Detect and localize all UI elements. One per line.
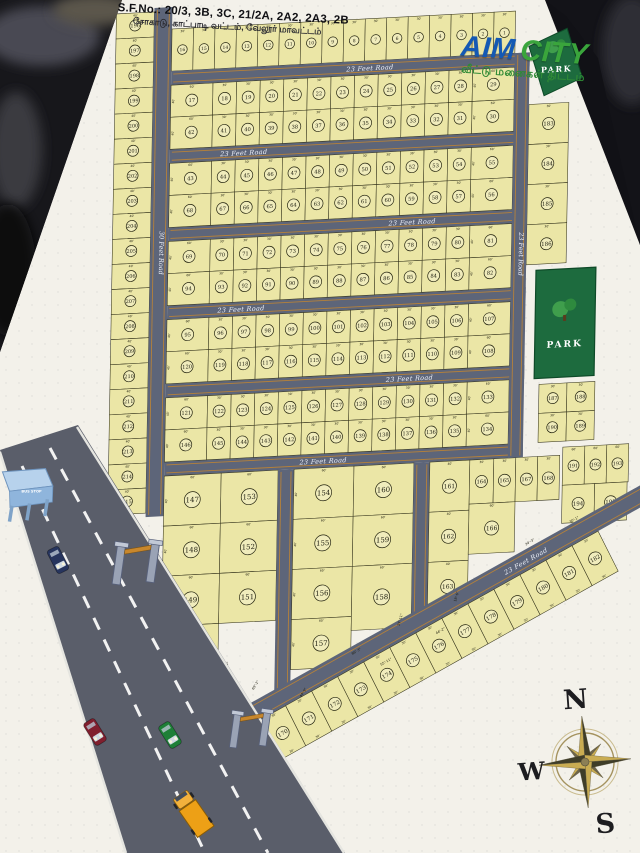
plot-number: 41 bbox=[221, 128, 228, 134]
svg-text:60': 60' bbox=[189, 575, 194, 579]
svg-text:30': 30' bbox=[374, 19, 379, 23]
svg-text:40': 40' bbox=[130, 214, 135, 218]
plot-49: 4930' bbox=[329, 154, 353, 187]
svg-text:60': 60' bbox=[184, 429, 189, 433]
plot-67: 6730' bbox=[211, 192, 235, 225]
svg-text:30': 30' bbox=[405, 418, 410, 422]
plot-number: 48 bbox=[314, 169, 321, 175]
plot-2: 230' bbox=[472, 12, 494, 55]
svg-text:30': 30' bbox=[361, 264, 366, 268]
plot-117: 11730' bbox=[255, 346, 279, 379]
plot-number: 2 bbox=[482, 31, 485, 37]
plot-119: 11930' bbox=[208, 348, 232, 381]
plot-9: 930' bbox=[322, 20, 344, 63]
plot-133: 13360'40' bbox=[467, 380, 510, 414]
plot-95: 9560'40' bbox=[166, 318, 209, 352]
svg-text:40': 40' bbox=[132, 89, 137, 93]
plot-number: 33 bbox=[409, 118, 416, 124]
svg-text:30': 30' bbox=[362, 186, 367, 190]
plot-number: 139 bbox=[355, 433, 365, 440]
plot-98: 9830' bbox=[256, 314, 280, 347]
plot-number: 183 bbox=[543, 121, 554, 128]
plot-number: 25 bbox=[386, 87, 393, 93]
svg-text:40': 40' bbox=[126, 439, 131, 443]
svg-text:30': 30' bbox=[546, 104, 551, 108]
plot-126: 12630' bbox=[301, 390, 325, 423]
plot-number: 97 bbox=[241, 329, 248, 335]
plot-101: 10130' bbox=[326, 310, 350, 343]
layout-photo: 19640'19740'19840'19940'20040'20140'2024… bbox=[0, 0, 640, 853]
plot-number: 14 bbox=[222, 45, 228, 51]
plot-number: 57 bbox=[455, 194, 462, 200]
plot-100: 10030' bbox=[303, 311, 327, 344]
svg-text:30': 30' bbox=[359, 388, 364, 392]
plot-number: 69 bbox=[186, 254, 193, 260]
plot-number: 129 bbox=[379, 400, 389, 407]
svg-text:30': 30' bbox=[524, 458, 529, 462]
plot-number: 166 bbox=[486, 525, 498, 533]
plot-12: 1230' bbox=[257, 23, 279, 66]
svg-text:40': 40' bbox=[133, 13, 138, 17]
plot-90: 9030' bbox=[280, 266, 304, 299]
svg-text:40': 40' bbox=[472, 115, 476, 120]
svg-text:30': 30' bbox=[340, 109, 345, 113]
plot-number: 196 bbox=[130, 23, 140, 30]
plot-64: 6430' bbox=[281, 188, 305, 221]
plot-number: 51 bbox=[385, 166, 392, 172]
plot-38: 3830' bbox=[283, 110, 307, 143]
plot-number: 112 bbox=[380, 354, 390, 361]
plot-199: 19940' bbox=[115, 87, 153, 114]
svg-text:30': 30' bbox=[218, 349, 223, 353]
plot-74: 7430' bbox=[304, 233, 328, 266]
svg-text:30': 30' bbox=[384, 309, 389, 313]
svg-text:30': 30' bbox=[578, 412, 583, 416]
plot-26: 2630' bbox=[401, 72, 425, 105]
plot-92: 9230' bbox=[233, 269, 257, 302]
svg-text:60': 60' bbox=[321, 518, 326, 522]
svg-text:30': 30' bbox=[434, 104, 439, 108]
plot-number: 128 bbox=[356, 401, 366, 408]
svg-text:40': 40' bbox=[473, 83, 477, 88]
svg-text:40': 40' bbox=[127, 364, 132, 368]
plot-number: 62 bbox=[337, 200, 344, 206]
svg-text:30': 30' bbox=[289, 346, 294, 350]
svg-text:30': 30' bbox=[417, 17, 422, 21]
svg-text:30': 30' bbox=[339, 187, 344, 191]
plot-number: 75 bbox=[336, 246, 343, 252]
plot-147: 14760'40' bbox=[163, 473, 221, 526]
svg-text:40': 40' bbox=[467, 395, 471, 400]
plot-145: 14530' bbox=[206, 427, 230, 460]
plot-30: 3060'40' bbox=[472, 99, 515, 133]
plot-number: 93 bbox=[218, 285, 225, 291]
svg-text:30': 30' bbox=[502, 459, 507, 463]
plot-number: 198 bbox=[130, 73, 140, 80]
plot-99: 9930' bbox=[279, 313, 303, 346]
plot-number: 27 bbox=[434, 85, 441, 91]
plot-number: 74 bbox=[313, 247, 320, 253]
plot-151: 15160' bbox=[219, 570, 277, 623]
plot-112: 11230' bbox=[373, 340, 397, 373]
svg-text:30': 30' bbox=[216, 428, 221, 432]
svg-text:40': 40' bbox=[167, 333, 171, 338]
svg-text:30': 30' bbox=[340, 77, 345, 81]
plot-number: 167 bbox=[521, 477, 531, 484]
plot-76: 7630' bbox=[351, 231, 375, 264]
svg-text:40': 40' bbox=[168, 287, 172, 292]
plot-109: 10930' bbox=[444, 336, 468, 369]
plot-number: 153 bbox=[242, 493, 255, 502]
plot-number: 164 bbox=[476, 479, 487, 486]
svg-text:30': 30' bbox=[289, 314, 294, 318]
plot-54: 5430' bbox=[447, 148, 471, 181]
plot-number: 124 bbox=[261, 406, 272, 413]
svg-text:30': 30' bbox=[265, 347, 270, 351]
plot-68: 6860'40' bbox=[169, 193, 212, 227]
plot-number: 71 bbox=[242, 251, 249, 257]
plot-201: 20140' bbox=[114, 137, 152, 164]
svg-text:30': 30' bbox=[453, 383, 458, 387]
svg-text:60': 60' bbox=[381, 515, 386, 519]
plot-number: 19 bbox=[245, 95, 252, 101]
plot-number: 37 bbox=[315, 123, 322, 129]
plot-number: 121 bbox=[181, 410, 191, 417]
svg-text:30': 30' bbox=[429, 416, 434, 420]
plot-number: 134 bbox=[482, 427, 493, 434]
plot-10: 1030' bbox=[300, 21, 322, 64]
plot-number: 185 bbox=[542, 201, 553, 208]
plot-152: 15260' bbox=[219, 520, 277, 573]
svg-text:60': 60' bbox=[190, 85, 195, 89]
svg-text:40': 40' bbox=[168, 255, 172, 260]
svg-text:60': 60' bbox=[491, 101, 496, 105]
plot-number: 204 bbox=[127, 223, 137, 230]
svg-text:30': 30' bbox=[334, 421, 339, 425]
plot-number: 77 bbox=[384, 244, 391, 250]
svg-text:30': 30' bbox=[361, 232, 366, 236]
plot-87: 8730' bbox=[351, 263, 375, 296]
plot-number: 141 bbox=[308, 436, 318, 443]
plot-44: 4430' bbox=[211, 160, 235, 193]
svg-text:30': 30' bbox=[433, 150, 438, 154]
plot-108: 10860'40' bbox=[467, 334, 510, 368]
svg-text:30': 30' bbox=[579, 383, 584, 387]
svg-text:40': 40' bbox=[294, 492, 298, 497]
svg-text:30': 30' bbox=[454, 337, 459, 341]
plot-141: 14130' bbox=[301, 422, 325, 455]
plot-107: 10760'40' bbox=[468, 302, 511, 336]
plot-7: 730' bbox=[365, 18, 387, 61]
plot-207: 20740' bbox=[111, 288, 149, 315]
plot-number: 186 bbox=[541, 241, 552, 248]
plot-20: 2030' bbox=[260, 79, 284, 112]
plot-121: 12160'40' bbox=[165, 396, 208, 430]
svg-text:30': 30' bbox=[291, 189, 296, 193]
plot-137: 13730' bbox=[395, 417, 419, 450]
svg-text:30': 30' bbox=[270, 80, 275, 84]
plot-78: 7830' bbox=[399, 228, 423, 261]
plot-192: 19260' bbox=[584, 445, 607, 484]
plot-89: 8930' bbox=[304, 265, 328, 298]
park-large: PARK bbox=[534, 267, 596, 378]
svg-text:30': 30' bbox=[454, 305, 459, 309]
svg-text:30': 30' bbox=[551, 384, 556, 388]
plot-number: 118 bbox=[238, 361, 248, 368]
svg-text:30': 30' bbox=[288, 392, 293, 396]
plot-17: 1760'40' bbox=[171, 83, 214, 117]
plot-21: 2130' bbox=[283, 78, 307, 111]
road-label-23ft-vertical: 23 Feet Road bbox=[516, 231, 525, 276]
svg-text:30': 30' bbox=[309, 22, 314, 26]
svg-text:30': 30' bbox=[352, 20, 357, 24]
svg-text:30': 30' bbox=[433, 182, 438, 186]
plot-number: 13 bbox=[244, 44, 250, 50]
plot-number: 206 bbox=[126, 274, 136, 281]
svg-text:60': 60' bbox=[382, 465, 387, 469]
plot-29: 2960'40' bbox=[472, 67, 515, 101]
plot-111: 11130' bbox=[397, 338, 421, 371]
plot-79: 7930' bbox=[422, 227, 446, 260]
plot-61: 6130' bbox=[352, 185, 376, 218]
plot-number: 76 bbox=[360, 245, 367, 251]
plot-84: 8430' bbox=[422, 259, 446, 292]
plot-number: 130 bbox=[403, 399, 413, 406]
plot-204: 20440' bbox=[113, 212, 151, 239]
svg-text:30': 30' bbox=[223, 27, 228, 31]
plot-number: 70 bbox=[218, 252, 225, 258]
plot-185: 18530' bbox=[527, 183, 568, 225]
svg-text:60': 60' bbox=[188, 195, 193, 199]
plot-143: 14330' bbox=[254, 424, 278, 457]
plot-57: 5730' bbox=[447, 180, 471, 213]
plot-number: 47 bbox=[291, 171, 298, 177]
plot-number: 108 bbox=[484, 349, 494, 356]
plot-number: 187 bbox=[548, 396, 558, 403]
plot-number: 161 bbox=[444, 483, 456, 491]
svg-text:30': 30' bbox=[290, 268, 295, 272]
svg-text:30': 30' bbox=[312, 344, 317, 348]
svg-text:60': 60' bbox=[489, 225, 494, 229]
plot-number: 35 bbox=[362, 121, 369, 127]
svg-text:30': 30' bbox=[220, 239, 225, 243]
svg-text:30': 30' bbox=[336, 343, 341, 347]
plot-number: 162 bbox=[443, 533, 455, 541]
plot-31: 3130' bbox=[448, 101, 472, 134]
plot-135: 13530' bbox=[442, 414, 466, 447]
svg-text:30': 30' bbox=[438, 15, 443, 19]
plot-number: 15 bbox=[201, 46, 207, 52]
plot-number: 194 bbox=[573, 501, 584, 508]
plot-203: 20340' bbox=[113, 187, 151, 214]
svg-text:30': 30' bbox=[219, 271, 224, 275]
plot-196: 19640' bbox=[116, 12, 154, 39]
plot-85: 8530' bbox=[398, 260, 422, 293]
svg-text:30': 30' bbox=[409, 229, 414, 233]
plot-number: 111 bbox=[404, 353, 414, 360]
svg-text:60': 60' bbox=[322, 468, 327, 472]
plot-50: 5030' bbox=[353, 153, 377, 186]
svg-text:30': 30' bbox=[411, 73, 416, 77]
plot-34: 3430' bbox=[377, 105, 401, 138]
svg-text:30': 30' bbox=[336, 311, 341, 315]
plot-123: 12330' bbox=[231, 393, 255, 426]
svg-text:30': 30' bbox=[242, 316, 247, 320]
compass-north-label: N bbox=[562, 684, 589, 717]
svg-text:30': 30' bbox=[245, 26, 250, 30]
svg-text:40': 40' bbox=[128, 289, 133, 293]
svg-text:30': 30' bbox=[288, 23, 293, 27]
svg-text:30': 30' bbox=[218, 317, 223, 321]
plot-number: 79 bbox=[431, 241, 438, 247]
plot-number: 208 bbox=[125, 324, 135, 331]
plot-200: 20040' bbox=[114, 112, 152, 139]
plot-number: 31 bbox=[457, 116, 464, 122]
plot-43: 4360'40' bbox=[169, 161, 212, 195]
svg-text:40': 40' bbox=[447, 512, 452, 516]
plot-213: 21340' bbox=[109, 438, 147, 465]
svg-text:30': 30' bbox=[395, 18, 400, 22]
plot-number: 154 bbox=[317, 489, 331, 498]
plot-93: 9330' bbox=[209, 270, 233, 303]
plot-115: 11530' bbox=[302, 343, 326, 376]
plot-53: 5330' bbox=[424, 149, 448, 182]
svg-text:30': 30' bbox=[544, 224, 549, 228]
svg-text:40': 40' bbox=[468, 349, 472, 354]
svg-text:30': 30' bbox=[545, 184, 550, 188]
plot-number: 43 bbox=[187, 176, 194, 182]
plot-168: 16830' bbox=[537, 455, 560, 500]
plot-number: 38 bbox=[291, 124, 298, 130]
plot-number: 3 bbox=[460, 32, 463, 38]
svg-text:30': 30' bbox=[222, 83, 227, 87]
svg-text:60': 60' bbox=[320, 568, 325, 572]
plot-132: 13230' bbox=[443, 382, 467, 415]
svg-text:30': 30' bbox=[410, 151, 415, 155]
plot-75: 7530' bbox=[328, 232, 352, 265]
plot-number: 135 bbox=[450, 428, 460, 435]
plot-number: 45 bbox=[243, 173, 250, 179]
bus-stop-label: BUS STOP bbox=[21, 490, 42, 494]
svg-text:30': 30' bbox=[221, 193, 226, 197]
plot-186: 18630' bbox=[526, 223, 567, 265]
plot-48: 4830' bbox=[306, 155, 330, 188]
svg-text:30': 30' bbox=[430, 338, 435, 342]
plot-165: 16530' bbox=[493, 458, 516, 503]
svg-text:60': 60' bbox=[246, 522, 251, 526]
plot-number: 58 bbox=[432, 195, 439, 201]
svg-text:30': 30' bbox=[382, 419, 387, 423]
plot-8: 830' bbox=[343, 19, 365, 62]
svg-text:30': 30' bbox=[364, 75, 369, 79]
plot-number: 212 bbox=[123, 424, 133, 431]
svg-text:60': 60' bbox=[487, 303, 492, 307]
plot-number: 120 bbox=[182, 364, 192, 371]
plot-number: 109 bbox=[451, 350, 461, 357]
svg-text:60': 60' bbox=[485, 414, 490, 418]
svg-text:30': 30' bbox=[291, 235, 296, 239]
svg-text:30': 30' bbox=[457, 149, 462, 153]
plot-206: 20640' bbox=[112, 263, 150, 290]
svg-text:30': 30' bbox=[458, 103, 463, 107]
plot-number: 114 bbox=[333, 356, 344, 363]
plot-number: 146 bbox=[181, 443, 191, 450]
svg-text:30': 30' bbox=[243, 238, 248, 242]
plot-number: 101 bbox=[333, 324, 343, 331]
plot-91: 9130' bbox=[256, 268, 280, 301]
svg-text:30': 30' bbox=[293, 79, 298, 83]
plot-209: 20940' bbox=[110, 338, 148, 365]
plot-105: 10530' bbox=[421, 305, 445, 338]
plot-number: 73 bbox=[289, 249, 296, 255]
svg-text:30': 30' bbox=[315, 188, 320, 192]
plot-number: 4 bbox=[439, 34, 442, 40]
plot-97: 9730' bbox=[232, 315, 256, 348]
plot-140: 14030' bbox=[324, 420, 348, 453]
svg-text:40': 40' bbox=[125, 464, 130, 468]
plot-104: 10430' bbox=[397, 306, 421, 339]
plot-146: 14660'40' bbox=[165, 428, 208, 462]
plot-number: 39 bbox=[268, 126, 275, 132]
svg-text:30': 30' bbox=[314, 234, 319, 238]
svg-text:40': 40' bbox=[130, 164, 135, 168]
svg-text:30': 30' bbox=[245, 160, 250, 164]
plot-202: 20240' bbox=[113, 162, 151, 189]
svg-text:30': 30' bbox=[479, 460, 484, 464]
svg-text:30': 30' bbox=[546, 456, 551, 460]
svg-text:40': 40' bbox=[291, 642, 295, 647]
plot-number: 199 bbox=[129, 98, 139, 105]
svg-text:30': 30' bbox=[363, 107, 368, 111]
svg-text:30': 30' bbox=[292, 157, 297, 161]
svg-text:30': 30' bbox=[311, 423, 316, 427]
svg-text:30': 30' bbox=[546, 144, 551, 148]
plot-71: 7130' bbox=[233, 237, 257, 270]
plot-155: 15560'40' bbox=[292, 516, 353, 569]
plot-number: 32 bbox=[433, 117, 440, 123]
plot-number: 12 bbox=[265, 42, 271, 48]
plot-number: 211 bbox=[124, 399, 134, 406]
svg-text:40': 40' bbox=[471, 193, 475, 198]
plot-number: 157 bbox=[314, 639, 327, 648]
plot-77: 7730' bbox=[375, 229, 399, 262]
plot-number: 138 bbox=[379, 432, 389, 439]
svg-text:60': 60' bbox=[593, 446, 598, 450]
plot-69: 6960'40' bbox=[168, 239, 211, 273]
svg-text:30': 30' bbox=[180, 29, 185, 33]
plot-162: 16240' bbox=[428, 510, 469, 562]
plot-number: 142 bbox=[284, 437, 294, 444]
svg-text:30': 30' bbox=[363, 154, 368, 158]
plot-18: 1830' bbox=[212, 82, 236, 115]
plot-number: 1 bbox=[503, 30, 506, 36]
plot-4: 430' bbox=[429, 14, 451, 57]
svg-text:30': 30' bbox=[264, 393, 269, 397]
plot-14: 1430' bbox=[214, 26, 236, 69]
svg-text:60': 60' bbox=[486, 381, 491, 385]
plot-number: 214 bbox=[123, 474, 133, 481]
plot-number: 42 bbox=[188, 130, 195, 136]
plot-148: 14860'40' bbox=[163, 523, 221, 576]
plot-number: 63 bbox=[314, 201, 321, 207]
plot-86: 8630' bbox=[374, 262, 398, 295]
svg-text:40': 40' bbox=[126, 389, 131, 393]
plot-103: 10330' bbox=[374, 308, 398, 341]
plot-number: 50 bbox=[361, 167, 368, 173]
plot-47: 4730' bbox=[282, 156, 306, 189]
plot-40: 4030' bbox=[236, 113, 260, 146]
svg-text:30': 30' bbox=[431, 306, 436, 310]
